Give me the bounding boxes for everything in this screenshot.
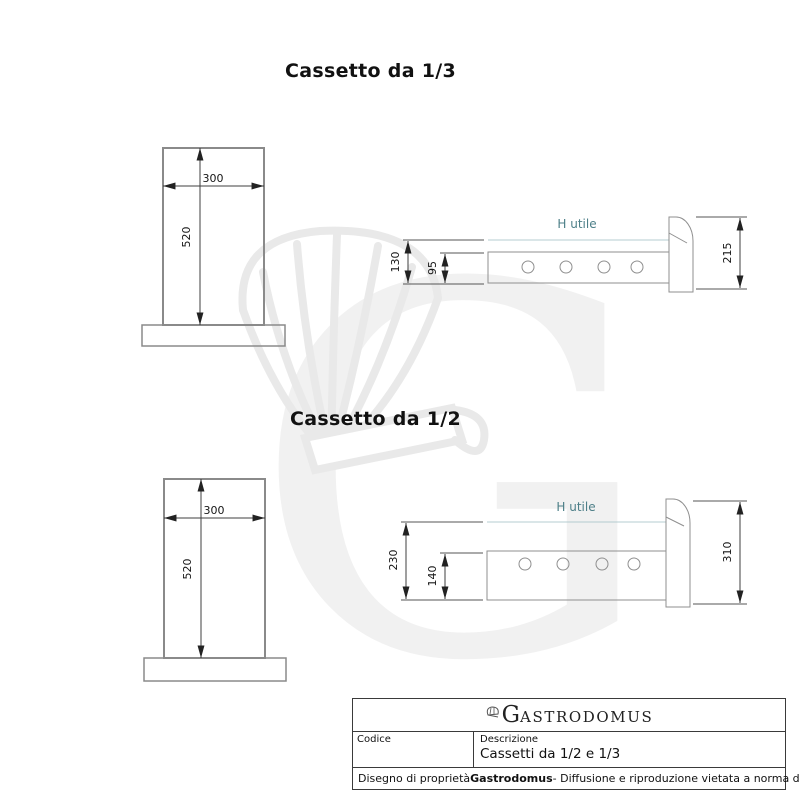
hole-icon [628, 558, 640, 570]
copyright-prefix: Disegno di proprietà [358, 772, 470, 785]
rail-holes [519, 558, 640, 570]
hole-icon [519, 558, 531, 570]
front-view-1-3: 300 520 [142, 148, 285, 346]
h-utile-label: H utile [557, 217, 596, 231]
dim-width-label: 300 [204, 504, 225, 517]
drawing-sheet: G 300 520 [0, 0, 800, 800]
drawer-base-outline [144, 658, 286, 681]
dim-total-height-label: 130 [389, 252, 402, 273]
title-block-logo-row: G ASTRODOMUS [353, 699, 785, 731]
h-utile-label: H utile [556, 500, 595, 514]
section-title-cassetto-1-2: Cassetto da 1/2 [290, 408, 461, 430]
hole-icon [557, 558, 569, 570]
dim-width-label: 300 [203, 172, 224, 185]
side-view-1-3: H utile 130 95 215 [389, 217, 747, 292]
hole-icon [598, 261, 610, 273]
drawer-rail-outline [487, 551, 666, 600]
copyright-suffix: - Diffusione e riproduzione vietata a no… [553, 772, 800, 785]
drawer-front-panel-outline [669, 217, 693, 292]
copyright-row: Disegno di proprietà Gastrodomus - Diffu… [353, 767, 785, 789]
rail-holes [522, 261, 643, 273]
descrizione-label: Descrizione [480, 734, 779, 745]
section-title-cassetto-1-3: Cassetto da 1/3 [285, 60, 456, 82]
panel-fold-line [669, 233, 687, 243]
hole-icon [560, 261, 572, 273]
copyright-brand: Gastrodomus [470, 772, 553, 785]
drawer-front-panel-outline [666, 499, 690, 607]
logo-text: ASTRODOMUS [520, 708, 653, 726]
hole-icon [522, 261, 534, 273]
side-view-1-2: H utile 230 140 310 [387, 499, 747, 607]
codice-label: Codice [357, 734, 469, 745]
title-block-fields-row: Codice Descrizione Cassetti da 1/2 e 1/3 [353, 731, 785, 767]
chef-hat-icon [485, 705, 501, 719]
descrizione-value: Cassetti da 1/2 e 1/3 [480, 746, 779, 762]
dim-inner-height-label: 140 [426, 566, 439, 587]
dim-front-height-label: 310 [721, 542, 734, 563]
drawer-rail-outline [488, 252, 669, 283]
extension-lines [401, 501, 747, 604]
hole-icon [631, 261, 643, 273]
hole-icon [596, 558, 608, 570]
dim-height-label: 520 [181, 559, 194, 580]
title-block: G ASTRODOMUS Codice Descrizione Cassetti… [352, 698, 786, 790]
dim-height-label: 520 [180, 227, 193, 248]
descrizione-cell: Descrizione Cassetti da 1/2 e 1/3 [474, 732, 785, 767]
technical-drawing: 300 520 H utile [0, 0, 800, 800]
dim-inner-height-label: 95 [426, 261, 439, 275]
logo-letter-g: G [502, 704, 520, 727]
gastrodomus-logo: G ASTRODOMUS [485, 704, 654, 727]
dim-front-height-label: 215 [721, 243, 734, 264]
front-view-1-2: 300 520 [144, 479, 286, 681]
dim-total-height-label: 230 [387, 550, 400, 571]
codice-cell: Codice [353, 732, 474, 767]
panel-fold-line [666, 517, 684, 526]
drawer-base-outline [142, 325, 285, 346]
